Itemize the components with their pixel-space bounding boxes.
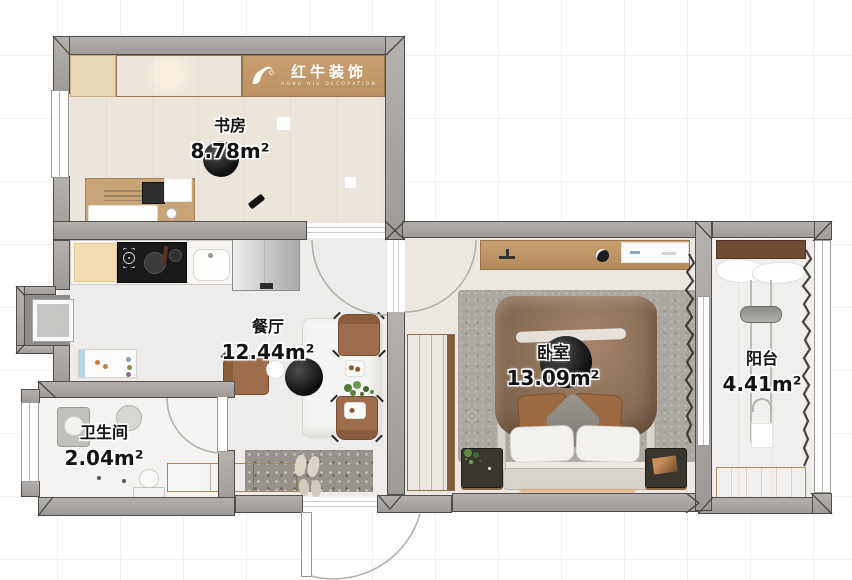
dining-room-name: 餐厅 <box>222 318 315 336</box>
fridge-divider <box>264 232 265 290</box>
entry-bottom-wall-left <box>235 495 303 513</box>
study-spotlight-2 <box>344 176 357 189</box>
bedroom-top-wall <box>402 221 712 238</box>
fridge[interactable] <box>232 231 300 291</box>
shelf-white-tray <box>621 242 689 263</box>
sink-bay-bottom-wall <box>16 345 56 354</box>
plate-south <box>344 402 366 419</box>
bedroom-bottom-wall <box>452 493 698 512</box>
balcony-bottom-cabinet[interactable] <box>716 467 806 500</box>
study-window <box>51 90 69 178</box>
bed-headboard <box>503 468 653 490</box>
washer-dot-2 <box>103 364 108 369</box>
bull-icon <box>250 64 274 88</box>
desk-cup <box>166 208 177 219</box>
dining-room-label[interactable]: 餐厅 12.44m² <box>222 318 315 364</box>
drying-rack-hook <box>752 398 772 412</box>
study-room-name: 书房 <box>191 117 270 135</box>
drying-rack-bar[interactable] <box>740 306 782 323</box>
sink-bay-left-wall <box>16 286 25 354</box>
bedroom-label[interactable]: 卧室 13.09m² <box>507 344 600 390</box>
bedroom-balcony-window <box>697 296 710 446</box>
table-plant <box>344 384 352 392</box>
study-cabinet-light[interactable] <box>70 55 116 97</box>
entry-door-leaf[interactable] <box>301 512 312 577</box>
balcony-corner-bottom-right <box>812 493 832 514</box>
kitchen-cooktop[interactable] <box>117 242 187 283</box>
fridge-handle <box>260 283 273 289</box>
washer-dot-4 <box>127 365 132 370</box>
plate-north <box>345 360 365 377</box>
bathroom-name: 卫生间 <box>65 424 144 442</box>
bathroom-top-wall <box>38 381 235 398</box>
brand-logo-band: 红牛装饰 HONG NIU DECORATION <box>242 55 385 97</box>
study-spotlight-1 <box>276 116 291 131</box>
study-cabinet-wood[interactable] <box>116 55 242 97</box>
bed-pillow-right <box>575 425 640 463</box>
washer-blue-edge <box>79 350 85 377</box>
kitchen-counter-beige-section <box>74 243 117 282</box>
bathroom-bottom-wall <box>38 497 235 516</box>
cooktop-burner-small <box>169 249 182 262</box>
balcony-label[interactable]: 阳台 4.41m² <box>723 350 802 396</box>
study-door-opening[interactable] <box>307 223 385 238</box>
washer-dot-1 <box>95 360 100 365</box>
nightstand-speck <box>488 467 491 470</box>
nightstand-art <box>652 455 678 474</box>
bathroom-area: 2.04m² <box>65 447 144 470</box>
bathroom-door-leaf[interactable] <box>217 396 228 452</box>
bedroom-area: 13.09m² <box>507 367 600 390</box>
cooktop-knobs <box>123 248 135 268</box>
dining-left-wall-upper <box>53 240 70 290</box>
balcony-top-cabinet[interactable] <box>716 240 806 259</box>
brand-subtitle: HONG NIU DECORATION <box>281 83 377 88</box>
bathroom-speck-2 <box>122 479 126 483</box>
dining-bedroom-divider-wall <box>387 310 405 495</box>
dining-chair-north[interactable] <box>338 314 380 356</box>
study-right-wall <box>385 36 405 240</box>
nightstand-right[interactable] <box>645 448 687 488</box>
wardrobe[interactable] <box>407 334 455 491</box>
tray-blue-item <box>630 251 640 254</box>
washer-dot-3 <box>126 357 131 362</box>
bathroom-window-stub-top <box>21 389 40 403</box>
study-room-area: 8.78m² <box>191 140 270 163</box>
toilet-bowl[interactable] <box>139 469 159 488</box>
entry-door-arc <box>311 514 420 579</box>
bathroom-speck-1 <box>97 476 101 480</box>
entry-bottom-wall-right <box>377 495 452 513</box>
balcony-corner-top-right <box>814 221 832 240</box>
bathroom-label[interactable]: 卫生间 2.04m² <box>65 424 144 470</box>
entry-door-opening[interactable] <box>303 497 377 512</box>
study-top-wall <box>53 36 402 55</box>
study-bottom-wall <box>53 221 307 240</box>
bedroom-door-opening[interactable] <box>387 240 405 312</box>
balcony-name: 阳台 <box>723 350 802 368</box>
balcony-area: 4.41m² <box>723 373 802 396</box>
washer-dot-5 <box>126 372 131 377</box>
shelf-chair-mark-stem <box>506 249 509 259</box>
doormat-shoe-4 <box>311 480 322 497</box>
nightstand-plant <box>464 449 472 457</box>
brand-name: 红牛装饰 <box>281 65 377 80</box>
bathroom-window-stub-bottom <box>21 481 40 497</box>
tray-gray-item <box>662 252 676 255</box>
balcony-white-box <box>751 423 773 448</box>
desk-notes <box>104 190 142 201</box>
sink-faucet <box>208 253 213 258</box>
bathroom-window <box>21 402 39 482</box>
dining-room-area: 12.44m² <box>222 341 315 364</box>
bedroom-name: 卧室 <box>507 344 600 362</box>
mop-sink-basin[interactable] <box>33 300 73 341</box>
study-room-label[interactable]: 书房 8.78m² <box>191 117 270 163</box>
cooktop-utensil <box>162 246 169 265</box>
desk-laptop[interactable] <box>142 182 165 204</box>
bedroom-wall-shelf[interactable] <box>480 240 690 270</box>
kitchen-sink[interactable] <box>193 249 230 281</box>
washing-machine[interactable] <box>78 349 137 378</box>
floor-plan-canvas: 红牛装饰 HONG NIU DECORATION <box>0 0 852 580</box>
desk-paper <box>164 178 192 202</box>
wardrobe-side-panel <box>447 335 454 490</box>
study-left-wall-upper <box>53 36 70 94</box>
bed-pillow-left <box>509 425 574 463</box>
shelf-clock <box>596 249 609 262</box>
nightstand-left[interactable] <box>461 448 503 488</box>
balcony-window <box>814 240 831 493</box>
